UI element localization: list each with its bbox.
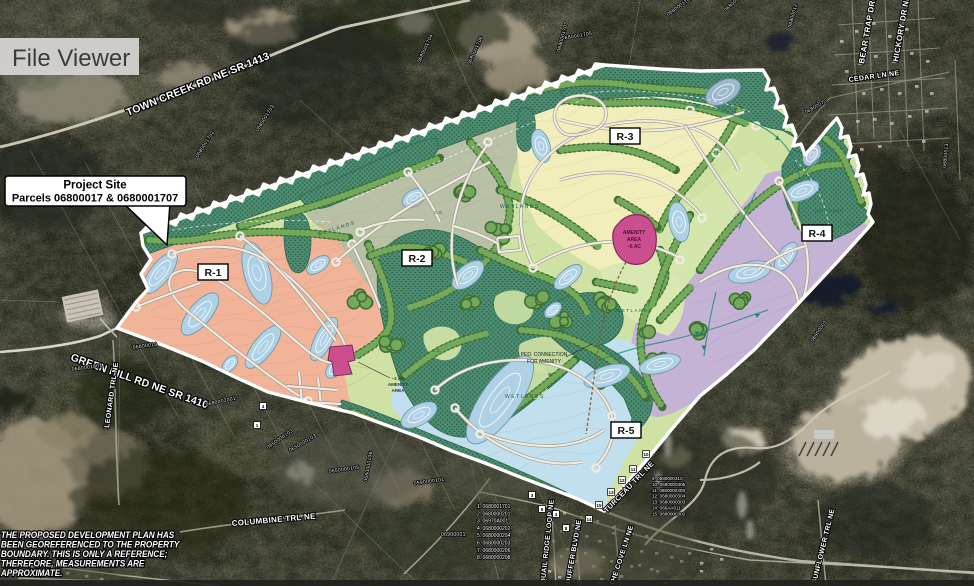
svg-text:12. 0680000304: 12. 0680000304 bbox=[652, 494, 686, 499]
svg-text:8. 0680000208: 8. 0680000208 bbox=[477, 555, 511, 561]
svg-text:10: 10 bbox=[643, 452, 649, 457]
svg-text:APPROXIMATE.: APPROXIMATE. bbox=[0, 567, 62, 578]
svg-text:R-5: R-5 bbox=[618, 425, 635, 437]
svg-text:5: 5 bbox=[541, 507, 544, 512]
svg-text:1: 1 bbox=[256, 423, 259, 428]
svg-text:O.S.: O.S. bbox=[717, 238, 726, 243]
svg-text:R-4: R-4 bbox=[809, 228, 826, 240]
svg-text:O.S.: O.S. bbox=[712, 149, 721, 154]
svg-text:PED. CONNECTION: PED. CONNECTION bbox=[521, 352, 568, 358]
svg-text:12: 12 bbox=[619, 478, 625, 483]
svg-text:14: 14 bbox=[586, 517, 592, 522]
svg-text:O.S.: O.S. bbox=[516, 88, 525, 93]
svg-text:WETLANDS: WETLANDS bbox=[616, 308, 653, 313]
svg-text:AMENITY: AMENITY bbox=[623, 230, 646, 236]
svg-text:~2 AC: ~2 AC bbox=[392, 376, 405, 381]
svg-text:13. 0680000303: 13. 0680000303 bbox=[652, 500, 686, 505]
svg-text:11: 11 bbox=[631, 467, 636, 472]
svg-text:4: 4 bbox=[555, 512, 558, 517]
svg-text:6. 0680000203: 6. 0680000203 bbox=[477, 541, 511, 547]
svg-text:WETLANDS: WETLANDS bbox=[505, 394, 545, 400]
svg-text:8: 8 bbox=[565, 526, 568, 531]
svg-text:WETLANDS: WETLANDS bbox=[815, 208, 844, 213]
svg-text:10. 0680000305: 10. 0680000305 bbox=[652, 482, 686, 487]
svg-text:O.S.: O.S. bbox=[432, 348, 441, 353]
svg-text:AREA: AREA bbox=[392, 388, 406, 393]
svg-text:R-2: R-2 bbox=[409, 253, 426, 265]
svg-text:WETLANDS: WETLANDS bbox=[626, 80, 666, 86]
svg-text:06900001: 06900001 bbox=[441, 532, 466, 538]
svg-text:9. 0680000310: 9. 0680000310 bbox=[652, 476, 683, 481]
svg-text:7. 0680000206: 7. 0680000206 bbox=[477, 548, 511, 554]
svg-text:O.S.: O.S. bbox=[846, 222, 855, 227]
svg-text:AMENITY: AMENITY bbox=[388, 382, 408, 387]
svg-text:2. 0680000201: 2. 0680000201 bbox=[477, 511, 511, 517]
svg-text:O.S.: O.S. bbox=[434, 210, 443, 215]
svg-text:Parcels 06800017 & 0680001707: Parcels 06800017 & 0680001707 bbox=[12, 193, 178, 205]
svg-text:Project Site: Project Site bbox=[63, 180, 126, 192]
svg-text:13: 13 bbox=[608, 490, 614, 495]
svg-text:O.S.: O.S. bbox=[525, 293, 534, 298]
svg-text:15. 0680000302: 15. 0680000302 bbox=[652, 511, 686, 516]
svg-text:15: 15 bbox=[596, 503, 602, 508]
svg-text:File Viewer: File Viewer bbox=[12, 45, 130, 72]
svg-text:WETLANDS: WETLANDS bbox=[500, 204, 540, 210]
svg-text:~6 AC: ~6 AC bbox=[627, 244, 642, 250]
svg-text:AREA: AREA bbox=[627, 237, 642, 243]
svg-text:3: 3 bbox=[531, 493, 534, 498]
svg-text:3. 06970A001: 3. 06970A001 bbox=[477, 519, 508, 525]
svg-text:5. 0680000204: 5. 0680000204 bbox=[477, 533, 511, 539]
svg-text:1. 0680001701: 1. 0680001701 bbox=[477, 504, 511, 510]
svg-text:R-1: R-1 bbox=[205, 267, 222, 279]
svg-text:4. 0680000202: 4. 0680000202 bbox=[477, 526, 511, 532]
svg-text:FOR AMENITY: FOR AMENITY bbox=[527, 359, 562, 365]
svg-text:4: 4 bbox=[262, 404, 265, 409]
svg-text:R-3: R-3 bbox=[617, 131, 634, 143]
svg-text:11. 0680000308: 11. 0680000308 bbox=[652, 488, 685, 493]
svg-text:14. 066AA011: 14. 066AA011 bbox=[652, 506, 681, 511]
